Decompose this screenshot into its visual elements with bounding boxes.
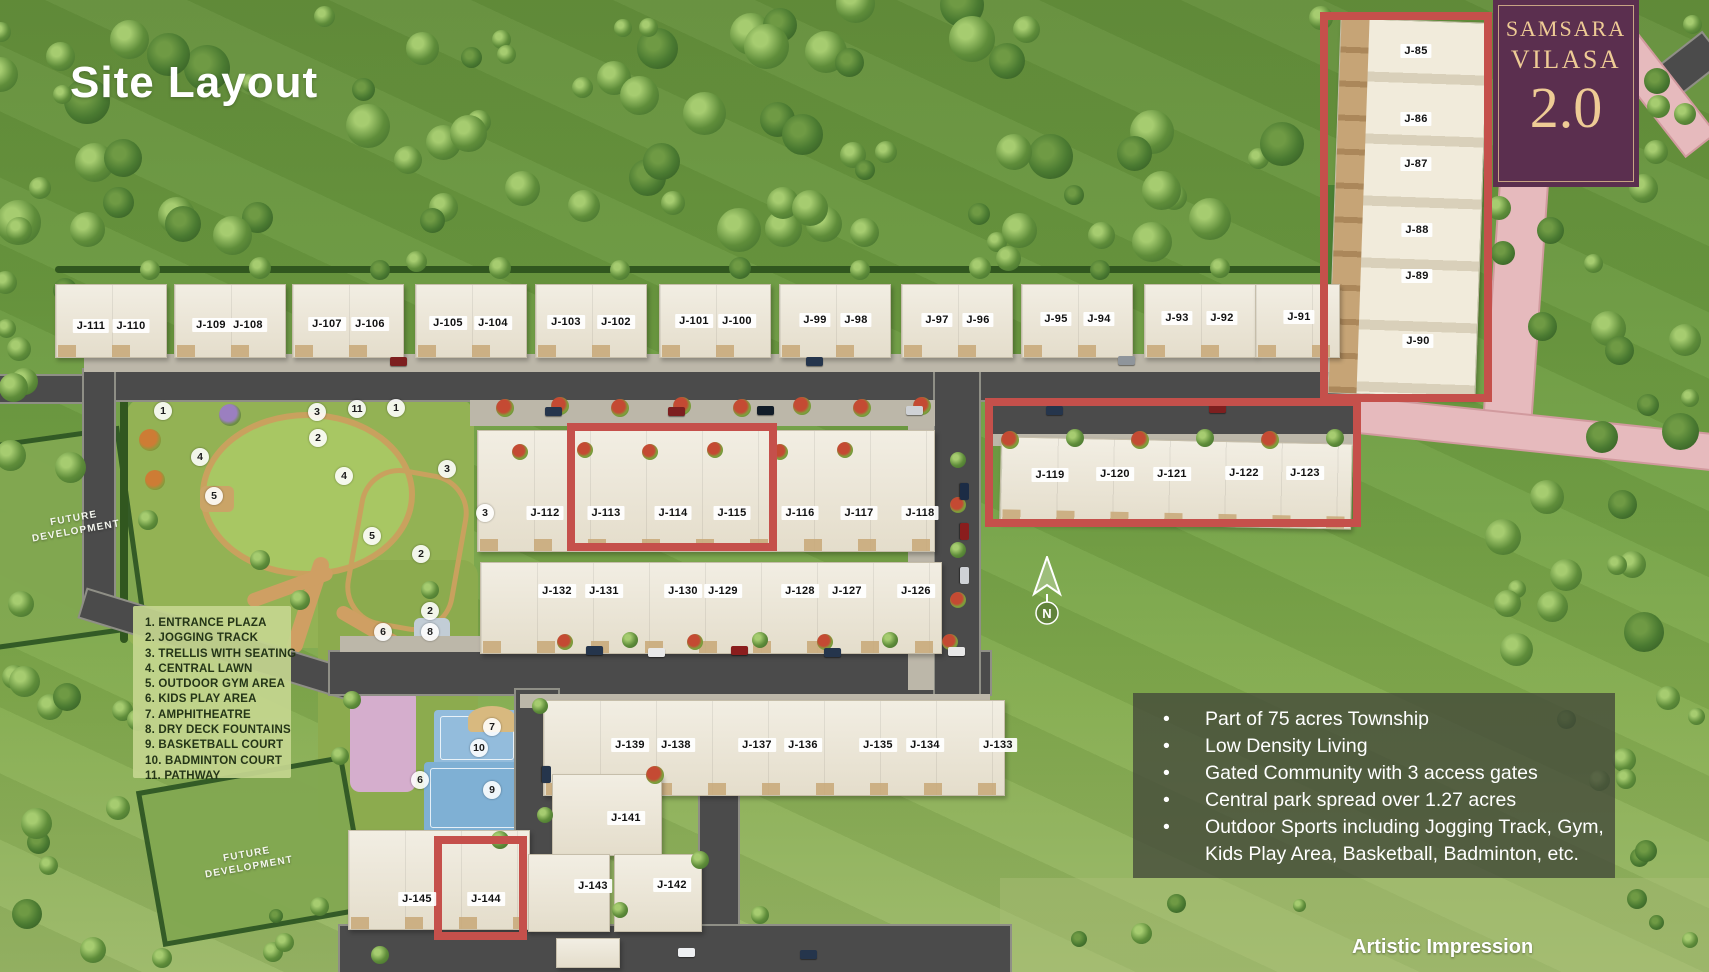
project-info-list: Part of 75 acres TownshipLow Density Liv…: [1133, 706, 1615, 868]
unit-label-J-129: J-129: [704, 584, 742, 598]
brand-logo: SAMSARA VILASA 2.0: [1493, 0, 1639, 187]
unit-label-J-143: J-143: [574, 879, 612, 893]
legend-item-6: 6. KIDS PLAY AREA: [145, 692, 285, 707]
unit-label-J-95: J-95: [1040, 312, 1071, 326]
unit-label-J-145: J-145: [398, 892, 436, 906]
unit-label-J-100: J-100: [718, 314, 756, 328]
unit-label-J-86: J-86: [1400, 112, 1431, 126]
park-marker-1: 1: [154, 402, 172, 420]
unit-label-J-126: J-126: [897, 584, 935, 598]
park-marker-6: 6: [374, 623, 392, 641]
park-marker-7: 7: [483, 718, 501, 736]
unit-label-J-85: J-85: [1400, 44, 1431, 58]
unit-label-J-88: J-88: [1401, 223, 1432, 237]
brand-name-line1: SAMSARA: [1493, 16, 1639, 42]
unit-label-J-108: J-108: [229, 318, 267, 332]
park-marker-6: 6: [411, 771, 429, 789]
park-marker-1: 1: [387, 399, 405, 417]
unit-label-J-112: J-112: [526, 506, 563, 520]
unit-label-J-101: J-101: [675, 314, 713, 328]
park-marker-3: 3: [438, 460, 456, 478]
unit-label-J-119: J-119: [1031, 468, 1068, 482]
info-bullet-1: Part of 75 acres Township: [1133, 706, 1615, 733]
project-info-panel: Part of 75 acres TownshipLow Density Liv…: [1133, 693, 1615, 878]
park-marker-2: 2: [309, 429, 327, 447]
park-marker-4: 4: [335, 467, 353, 485]
unit-label-J-96: J-96: [962, 313, 993, 327]
park-marker-3: 3: [308, 403, 326, 421]
brand-version: 2.0: [1493, 77, 1639, 139]
legend-item-10: 10. BADMINTON COURT: [145, 754, 285, 769]
info-bullet-2: Low Density Living: [1133, 733, 1615, 760]
unit-label-J-117: J-117: [840, 506, 877, 520]
unit-label-J-89: J-89: [1401, 269, 1432, 283]
legend-item-5: 5. OUTDOOR GYM AREA: [145, 677, 285, 692]
unit-label-J-138: J-138: [657, 738, 695, 752]
unit-label-J-94: J-94: [1083, 312, 1114, 326]
info-bullet-5: Outdoor Sports including Jogging Track, …: [1133, 814, 1615, 868]
unit-label-J-121: J-121: [1153, 467, 1191, 481]
legend-item-7: 7. AMPHITHEATRE: [145, 708, 285, 723]
unit-label-J-137: J-137: [738, 738, 776, 752]
unit-label-J-132: J-132: [538, 584, 576, 598]
unit-label-J-122: J-122: [1225, 466, 1263, 480]
info-bullet-4: Central park spread over 1.27 acres: [1133, 787, 1615, 814]
legend-item-1: 1. ENTRANCE PLAZA: [145, 616, 285, 631]
unit-label-J-123: J-123: [1286, 466, 1324, 480]
unit-label-J-97: J-97: [921, 313, 952, 327]
unit-label-J-113: J-113: [587, 506, 624, 520]
unit-label-J-127: J-127: [828, 584, 866, 598]
amenities-legend: 1. ENTRANCE PLAZA2. JOGGING TRACK3. TREL…: [133, 606, 291, 778]
north-compass-icon: N: [1032, 556, 1062, 633]
legend-item-8: 8. DRY DECK FOUNTAINS: [145, 723, 285, 738]
park-marker-9: 9: [483, 781, 501, 799]
park-marker-10: 10: [470, 739, 488, 757]
unit-label-J-105: J-105: [429, 316, 467, 330]
page-title: Site Layout: [70, 58, 318, 108]
unit-label-J-128: J-128: [781, 584, 819, 598]
unit-label-J-131: J-131: [585, 584, 623, 598]
park-marker-2: 2: [412, 545, 430, 563]
compass-n-label: N: [1042, 606, 1051, 621]
legend-item-9: 9. BASKETBALL COURT: [145, 738, 285, 753]
legend-item-3: 3. TRELLIS WITH SEATING: [145, 647, 285, 662]
unit-label-J-109: J-109: [192, 318, 230, 332]
unit-label-J-135: J-135: [859, 738, 897, 752]
unit-label-J-141: J-141: [607, 811, 645, 825]
unit-label-J-136: J-136: [784, 738, 822, 752]
unit-label-J-99: J-99: [799, 313, 830, 327]
park-marker-3: 3: [476, 504, 494, 522]
unit-label-J-107: J-107: [308, 317, 346, 331]
unit-label-J-118: J-118: [901, 506, 938, 520]
unit-label-J-139: J-139: [611, 738, 649, 752]
park-marker-8: 8: [421, 623, 439, 641]
park-marker-2: 2: [421, 602, 439, 620]
legend-item-2: 2. JOGGING TRACK: [145, 631, 285, 646]
unit-label-J-120: J-120: [1096, 467, 1134, 481]
unit-label-J-130: J-130: [664, 584, 702, 598]
amenities-legend-list: 1. ENTRANCE PLAZA2. JOGGING TRACK3. TREL…: [145, 616, 285, 784]
unit-label-J-116: J-116: [781, 506, 818, 520]
park-marker-5: 5: [363, 527, 381, 545]
unit-label-J-115: J-115: [713, 506, 750, 520]
unit-label-J-90: J-90: [1402, 334, 1433, 348]
unit-label-J-134: J-134: [906, 738, 944, 752]
unit-label-J-144: J-144: [467, 892, 505, 906]
info-bullet-3: Gated Community with 3 access gates: [1133, 760, 1615, 787]
park-marker-4: 4: [191, 448, 209, 466]
unit-label-J-111: J-111: [73, 319, 109, 333]
unit-label-J-114: J-114: [654, 506, 691, 520]
brand-name-line2: VILASA: [1493, 45, 1639, 75]
unit-label-J-102: J-102: [597, 315, 635, 329]
unit-label-J-93: J-93: [1161, 311, 1192, 325]
unit-label-J-142: J-142: [653, 878, 691, 892]
unit-label-J-91: J-91: [1283, 310, 1314, 324]
unit-label-J-92: J-92: [1206, 311, 1237, 325]
unit-label-J-133: J-133: [979, 738, 1017, 752]
legend-item-4: 4. CENTRAL LAWN: [145, 662, 285, 677]
unit-label-J-87: J-87: [1400, 157, 1431, 171]
legend-item-11: 11. PATHWAY: [145, 769, 285, 784]
site-layout-plan: J-111J-110J-109J-108J-107J-106J-105J-104…: [0, 0, 1709, 972]
park-marker-5: 5: [205, 487, 223, 505]
unit-label-J-103: J-103: [547, 315, 585, 329]
unit-label-J-104: J-104: [474, 316, 512, 330]
park-marker-11: 11: [348, 400, 366, 418]
unit-label-J-98: J-98: [840, 313, 871, 327]
artistic-impression-watermark: Artistic Impression: [1352, 936, 1533, 959]
unit-label-J-110: J-110: [112, 319, 149, 333]
unit-label-J-106: J-106: [351, 317, 389, 331]
